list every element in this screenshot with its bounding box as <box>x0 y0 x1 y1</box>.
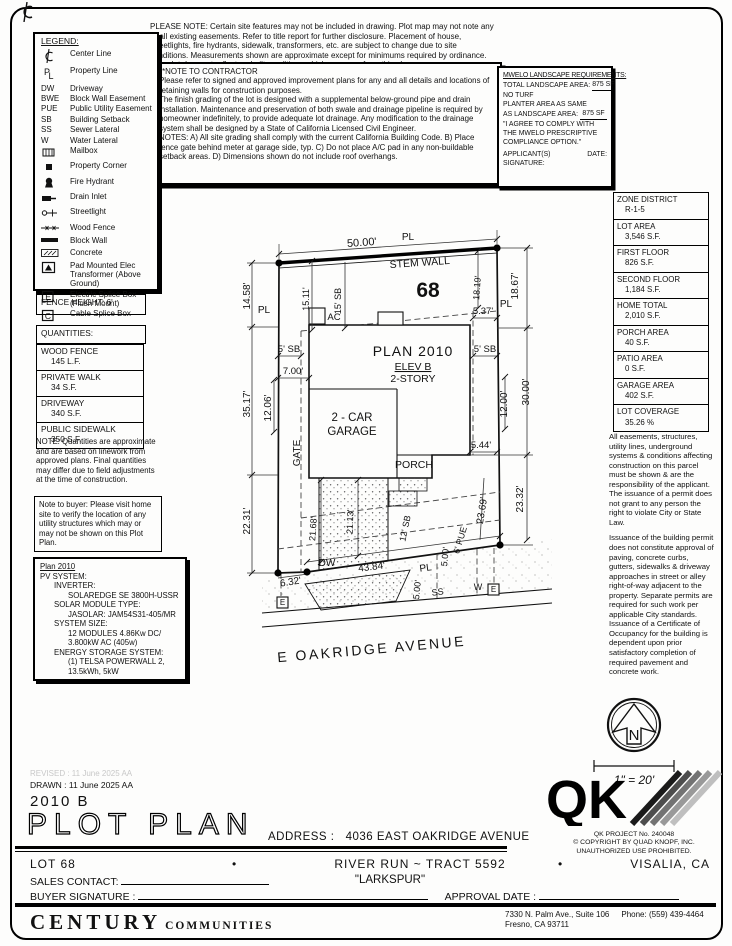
centerline-icon <box>41 49 70 65</box>
legend-item: Drain Inlet <box>41 192 155 206</box>
mwelo-requirements-box: MWELO LANDSCAPE REQUIREMENTS: TOTAL LAND… <box>497 66 613 188</box>
plot-label: 21.13' <box>345 509 356 534</box>
plot-label: 23.32' <box>515 485 526 512</box>
zoning-value: 35.26 % <box>617 418 705 428</box>
legend-abbreviation: W <box>41 136 70 145</box>
address-label: ADDRESS : <box>268 831 335 843</box>
builder-office-info: 7330 N. Palm Ave., Suite 106Phone: (559)… <box>505 910 716 931</box>
zoning-row: GARAGE AREA402 S.F. <box>614 379 708 406</box>
centerline-glyph <box>17 2 39 22</box>
plot-label: PL <box>500 299 513 310</box>
legend-item: Concrete <box>41 248 155 260</box>
divider-rule <box>15 846 507 849</box>
legend-item: Wood Fence <box>41 223 155 235</box>
zoning-row: ZONE DISTRICTR-1-5 <box>614 193 708 220</box>
buyer-note-box: Note to buyer: Please visit home site to… <box>34 496 162 552</box>
plot-label: 5' SB <box>474 344 496 355</box>
porch-stoop <box>399 478 427 491</box>
legend-item: PUEPublic Utility Easement <box>41 104 155 113</box>
pv-system-line: JASOLAR: JAM54S31-405/MR <box>40 610 180 620</box>
pv-system-box: Plan 2010PV SYSTEM:INVERTER:SOLAREDGE SE… <box>33 557 187 681</box>
plot-label: DW <box>319 558 336 569</box>
plot-label: GARAGE <box>327 426 377 438</box>
legend-label: Drain Inlet <box>70 192 155 201</box>
plot-label: 12.00' <box>499 390 510 417</box>
roof-projection <box>378 312 403 325</box>
quantities-table: WOOD FENCE145 L.F.PRIVATE WALK34 S.F.DRI… <box>36 344 144 449</box>
plot-label: GATE <box>292 439 303 466</box>
contractor-note-paragraph: The finish grading of the lot is designe… <box>159 95 495 133</box>
qk-logo-block: QK QK PROJECT No. 240048 © COPYRIGHT BY … <box>546 768 722 856</box>
legend-abbreviation: PUE <box>41 104 70 113</box>
zoning-value: R-1-5 <box>617 205 705 215</box>
plot-label: 30.00' <box>521 378 532 405</box>
date-line <box>576 181 607 190</box>
bullet-separator: • <box>558 857 562 871</box>
legend-label: Mailbox <box>70 146 155 155</box>
bullet-separator: • <box>232 857 236 871</box>
zoning-row: HOME TOTAL2,010 S.F. <box>614 299 708 326</box>
pv-system-line: ENERGY STORAGE SYSTEM: <box>40 648 180 658</box>
office-phone: Phone: (559) 439-4464 <box>621 910 703 919</box>
tract-name: RIVER RUN ~ TRACT 5592 <box>280 857 560 871</box>
legend-label: Concrete <box>70 248 155 257</box>
zoning-label: GARAGE AREA <box>617 381 705 391</box>
zoning-row: SECOND FLOOR1,184 S.F. <box>614 273 708 300</box>
legend-label: Fire Hydrant <box>70 177 155 186</box>
drain-inlet-icon <box>41 192 70 206</box>
legend-label: Property Corner <box>70 161 155 170</box>
plot-plan-page: PLEASE NOTE: Certain site features may n… <box>0 0 732 946</box>
propertyline-icon: PL <box>41 66 70 82</box>
plot-label: E <box>491 585 496 594</box>
legend-abbreviation: BWE <box>41 94 70 103</box>
pv-system-line: 13.5kWh, 5kW <box>40 667 180 677</box>
sales-contact-line <box>121 874 269 885</box>
legend-item: Center Line <box>41 49 155 65</box>
zoning-label: HOME TOTAL <box>617 301 705 311</box>
city-notes: All easements, structures, utility lines… <box>609 432 714 683</box>
legend-panel: LEGEND: Center LinePLProperty LineDWDriv… <box>33 32 159 291</box>
legend-label: Water Lateral <box>70 136 155 145</box>
mwelo-total-value: 875 SF <box>592 80 614 90</box>
plot-label: 15.11' <box>301 287 311 311</box>
zoning-table: ZONE DISTRICTR-1-5LOT AREA3,546 S.F.FIRS… <box>613 192 709 432</box>
zoning-value: 40 S.F. <box>617 338 705 348</box>
legend-item: Property Corner <box>41 161 155 175</box>
signature-row: BUYER SIGNATURE : APPROVAL DATE : <box>30 889 710 903</box>
legend-abbreviation: DW <box>41 84 70 93</box>
quantities-heading: QUANTITIES: <box>36 325 146 344</box>
sales-contact-label: SALES CONTACT: <box>30 876 119 888</box>
plot-label: SS <box>431 586 444 597</box>
legend-label: Block Wall Easement <box>70 94 155 103</box>
mwelo-heading: MWELO LANDSCAPE REQUIREMENTS: <box>503 71 607 80</box>
lot-number: LOT 68 <box>30 857 76 871</box>
zoning-label: FIRST FLOOR <box>617 248 705 258</box>
legend-item: Fire Hydrant <box>41 177 155 191</box>
legend-item: Mailbox <box>41 146 155 160</box>
plot-label: 21.68' <box>307 516 319 541</box>
pv-system-line: 12 MODULES 4.86Kw DC/ <box>40 629 180 639</box>
plot-label: E OAKRIDGE AVENUE <box>277 633 467 665</box>
legend-item: PLProperty Line <box>41 66 155 82</box>
concrete-icon <box>41 248 70 260</box>
address-value: 4036 EAST OAKRIDGE AVENUE <box>346 831 530 843</box>
zoning-value: 3,546 S.F. <box>617 232 705 242</box>
site-plan-drawing: 50.00'PLSTEM WALL68PL14.58'15.11'15' SB1… <box>233 226 555 678</box>
builder-name-suffix: COMMUNITIES <box>165 920 273 932</box>
legend-item: WWater Lateral <box>41 136 155 145</box>
zoning-value: 826 S.F. <box>617 258 705 268</box>
legend-item: Pad Mounted Elec Transformer (Above Grou… <box>41 261 155 289</box>
legend-label: Block Wall <box>70 236 155 245</box>
pv-system-line: (1) TELSA POWERWALL 2, <box>40 657 180 667</box>
plot-label: ELEV B <box>395 361 432 373</box>
ac-pad <box>309 308 325 324</box>
qk-warning: UNAUTHORIZED USE PROHIBITED. <box>546 848 722 856</box>
mwelo-quote: "I AGREE TO COMPLY WITH THE MWELO PRESCR… <box>503 120 607 148</box>
mwelo-date-label: DATE: <box>587 150 607 169</box>
plot-label: 18.19' <box>471 275 483 300</box>
zoning-row: FIRST FLOOR826 S.F. <box>614 246 708 273</box>
property-corner-icon <box>41 161 70 175</box>
buyer-signature-label: BUYER SIGNATURE : <box>30 891 135 903</box>
address-row: ADDRESS : 4036 EAST OAKRIDGE AVENUE <box>268 831 530 843</box>
legend-label: Wood Fence <box>70 223 155 232</box>
compass-north-label: N <box>629 727 640 744</box>
zoning-value: 1,184 S.F. <box>617 285 705 295</box>
plot-label: 14.58' <box>242 282 253 309</box>
plot-label: 35.17' <box>242 390 253 417</box>
zoning-label: SECOND FLOOR <box>617 275 705 285</box>
office-address-line2: Fresno, CA 93711 <box>505 920 716 930</box>
pad-transformer-icon <box>41 261 70 276</box>
mailbox-icon <box>41 146 70 160</box>
signature-line <box>503 181 563 190</box>
quantity-value: 145 L.F. <box>41 357 139 367</box>
zoning-value: 402 S.F. <box>617 391 705 401</box>
approval-date-line <box>539 889 679 900</box>
block-wall-icon <box>41 236 70 246</box>
legend-label: Driveway <box>70 84 155 93</box>
mwelo-total-label: TOTAL LANDSCAPE AREA: <box>503 81 590 90</box>
zoning-row: PORCH AREA40 S.F. <box>614 326 708 353</box>
legend-label: Center Line <box>70 49 155 58</box>
legend-heading: LEGEND: <box>41 37 155 47</box>
zoning-value: 2,010 S.F. <box>617 311 705 321</box>
quantity-row: WOOD FENCE145 L.F. <box>37 345 143 371</box>
plot-label: 50.00' <box>347 236 377 250</box>
plot-label: PLAN 2010 <box>373 343 454 359</box>
pv-system-line: Plan 2010 <box>40 562 180 572</box>
plot-label: PL <box>258 305 271 316</box>
plot-label: 18.67' <box>510 272 521 299</box>
fire-hydrant-icon <box>41 177 70 191</box>
contractor-note-paragraph: Please refer to signed and approved impr… <box>159 76 495 95</box>
plot-label: 12.06' <box>263 394 274 421</box>
plot-label: 15' SB <box>333 288 343 314</box>
office-address-line1: 7330 N. Palm Ave., Suite 106 <box>505 910 609 919</box>
note-to-contractor-box: **NOTE TO CONTRACTOR Please refer to sig… <box>152 62 502 185</box>
builder-name: CENTURY <box>30 910 161 934</box>
plot-label: PORCH <box>395 459 433 471</box>
legend-item: DWDriveway <box>41 84 155 93</box>
plot-label: PL <box>402 232 415 243</box>
svg-text:L: L <box>49 71 54 80</box>
city-note-paragraph: Issuance of the building permit does not… <box>609 533 714 676</box>
plot-label: 68 <box>416 279 440 302</box>
legend-item: Block Wall <box>41 236 155 246</box>
plot-label: PL <box>419 562 433 574</box>
mwelo-planter-line1: PLANTER AREA AS SAME <box>503 100 607 109</box>
zoning-row: PATIO AREA0 S.F. <box>614 352 708 379</box>
pv-system-line: INVERTER: <box>40 581 180 591</box>
plot-label: AC <box>327 312 340 323</box>
divider-rule <box>15 851 507 852</box>
mwelo-signature-label: APPLICANT(S) SIGNATURE: <box>503 150 587 169</box>
legend-item: BWEBlock Wall Easement <box>41 94 155 103</box>
plot-label: 5.44' <box>471 440 491 451</box>
city-name: VISALIA, CA <box>630 857 710 871</box>
legend-label: Building Setback <box>70 115 155 124</box>
quantity-row: DRIVEWAY340 S.F. <box>37 397 143 423</box>
plot-label: 22.31' <box>242 507 253 534</box>
quantity-value: 34 S.F. <box>41 383 139 393</box>
contractor-note-paragraph: NOTES: A) All site grading shall comply … <box>159 133 495 161</box>
legend-abbreviation: SB <box>41 115 70 124</box>
legend-label: Property Line <box>70 66 155 75</box>
zoning-row: LOT COVERAGE35.26 % <box>614 405 708 431</box>
zoning-label: PATIO AREA <box>617 354 705 364</box>
plot-label: 2 - CAR <box>332 412 373 424</box>
quantities-note: NOTE: Quantities are approximate and are… <box>36 437 156 485</box>
quantity-value: 340 S.F. <box>41 409 139 419</box>
fence-height-box: FENCE HEIGHT: 6' <box>36 294 146 315</box>
wood-fence-icon <box>41 223 70 235</box>
legend-abbreviation: SS <box>41 125 70 134</box>
qk-copyright: © COPYRIGHT BY QUAD KNOPF, INC. <box>546 839 722 847</box>
sales-contact-row: SALES CONTACT: <box>30 874 269 888</box>
plot-label: 5.00' <box>411 579 423 599</box>
contractor-heading: **NOTE TO CONTRACTOR <box>159 67 495 76</box>
plot-label: E <box>280 598 285 607</box>
qk-logo-stripes <box>632 772 720 824</box>
zoning-label: PORCH AREA <box>617 328 705 338</box>
pv-system-line: SYSTEM SIZE: <box>40 619 180 629</box>
legend-item: SBBuilding Setback <box>41 115 155 124</box>
pv-system-line: PV SYSTEM: <box>40 572 180 582</box>
city-note-paragraph: All easements, structures, utility lines… <box>609 432 714 527</box>
zoning-label: ZONE DISTRICT <box>617 195 705 205</box>
plot-label: 5' SB <box>278 344 300 355</box>
zoning-label: LOT COVERAGE <box>617 407 705 417</box>
quantity-row: PRIVATE WALK34 S.F. <box>37 371 143 397</box>
streetlight-icon <box>41 207 70 221</box>
builder-logo: CENTURY COMMUNITIES <box>30 910 273 935</box>
pv-system-line: SOLAR MODULE TYPE: <box>40 600 180 610</box>
legend-label: Pad Mounted Elec Transformer (Above Grou… <box>70 261 155 289</box>
pv-system-line: SOLAREDGE SE 3800H-USSR <box>40 591 180 601</box>
plot-label: 7.00' <box>283 366 303 377</box>
sheet-title: PLOT PLAN <box>27 808 255 842</box>
plot-label: 5.37' <box>473 306 493 317</box>
qk-logo: QK <box>546 768 722 826</box>
drawn-date: DRAWN : 11 June 2025 AA <box>30 780 133 790</box>
model-name: "LARKSPUR" <box>300 874 480 886</box>
mwelo-no-turf: NO TURF <box>503 91 607 100</box>
legend-item: Streetlight <box>41 207 155 221</box>
legend-label: Streetlight <box>70 207 155 216</box>
front-walk <box>389 491 417 506</box>
plot-label: 5.00' <box>439 546 451 566</box>
qk-logo-letters: QK <box>546 770 627 826</box>
approval-date-label: APPROVAL DATE : <box>445 891 536 903</box>
zoning-value: 0 S.F. <box>617 364 705 374</box>
legend-label: Public Utility Easement <box>70 104 155 113</box>
footer-rule <box>15 903 716 907</box>
mwelo-planter-value: 875 SF <box>580 109 607 119</box>
zoning-row: LOT AREA3,546 S.F. <box>614 220 708 247</box>
plot-label: 2-STORY <box>390 373 435 385</box>
revised-date: REVISED : 11 June 2025 AA <box>30 769 132 778</box>
mwelo-planter-line2: AS LANDSCAPE AREA: <box>503 110 578 119</box>
zoning-label: LOT AREA <box>617 222 705 232</box>
legend-item: SSSewer Lateral <box>41 125 155 134</box>
legend-label: Sewer Lateral <box>70 125 155 134</box>
pv-system-line: 3.800kW AC (405w) <box>40 638 180 648</box>
buyer-signature-line <box>138 889 428 900</box>
plot-label: W <box>474 582 483 592</box>
